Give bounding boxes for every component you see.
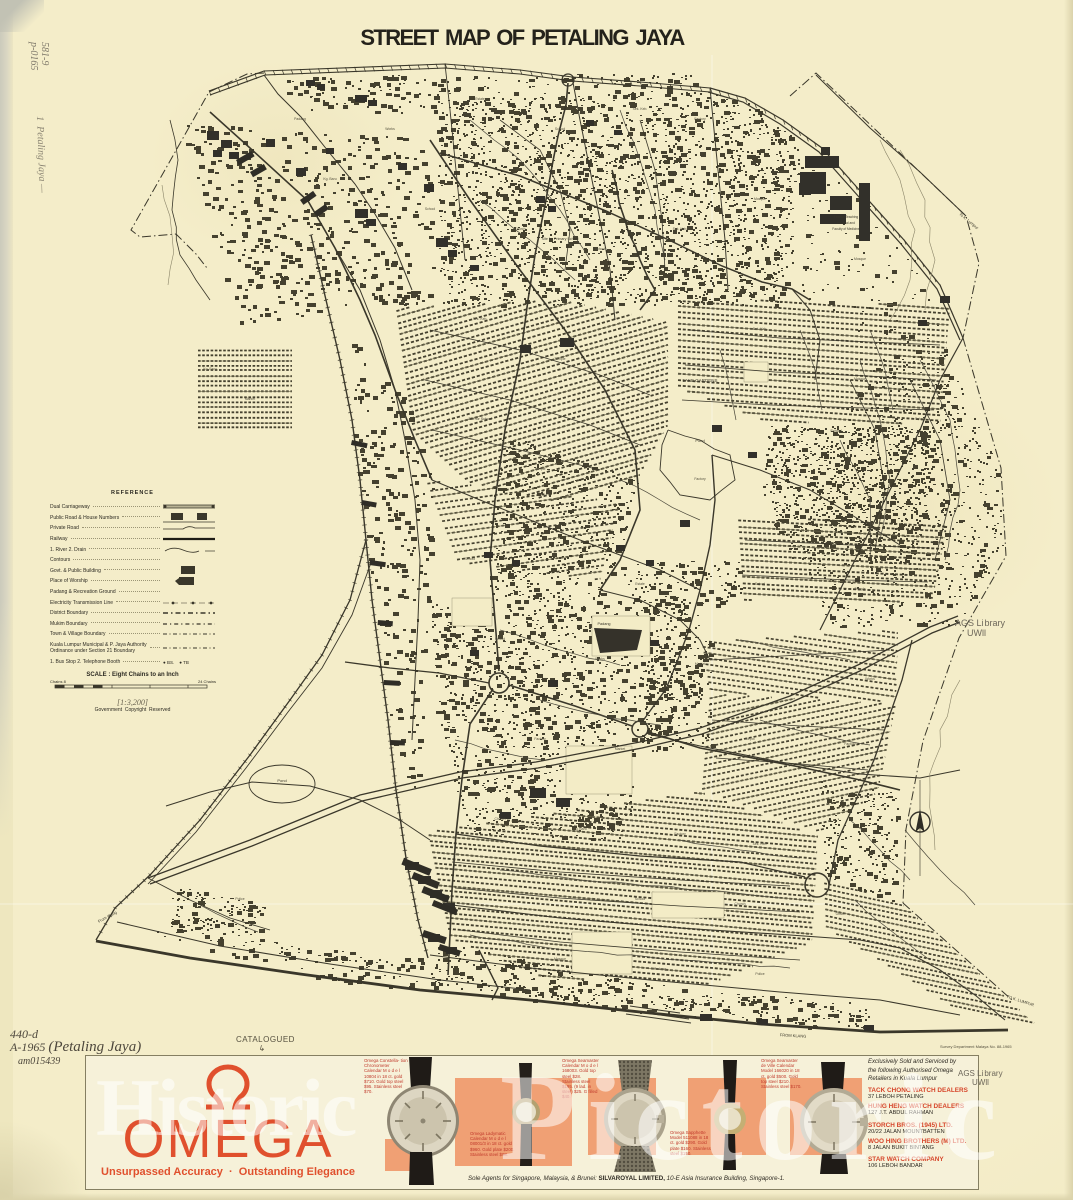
svg-text:Padang: Padang xyxy=(294,117,306,121)
svg-text:School: School xyxy=(595,247,606,251)
svg-text:Factory: Factory xyxy=(674,832,686,836)
svg-text:School: School xyxy=(465,557,476,561)
svg-text:FROM KLANG: FROM KLANG xyxy=(780,1032,807,1038)
svg-text:Sek. Keb.: Sek. Keb. xyxy=(633,107,648,111)
svg-text:Police: Police xyxy=(235,897,244,901)
svg-text:School: School xyxy=(555,127,566,131)
svg-text:Hospital and: Hospital and xyxy=(837,221,855,225)
svg-text:TO K. LUMPUR: TO K. LUMPUR xyxy=(1006,994,1035,1008)
svg-text:Church: Church xyxy=(495,817,506,821)
svg-text:Site for School: Site for School xyxy=(468,417,492,421)
svg-text:Mosque: Mosque xyxy=(794,647,806,651)
svg-text:Mosque: Mosque xyxy=(854,377,866,381)
svg-text:Sek. Keb.: Sek. Keb. xyxy=(673,227,688,231)
svg-text:Temple: Temple xyxy=(555,357,566,361)
svg-text:Office: Office xyxy=(836,912,845,916)
svg-text:Mosque: Mosque xyxy=(854,257,866,261)
svg-text:Works: Works xyxy=(595,657,605,661)
svg-text:School: School xyxy=(635,897,646,901)
svg-text:School: School xyxy=(830,429,842,433)
svg-text:Works: Works xyxy=(865,677,875,681)
svg-text:Depot: Depot xyxy=(745,737,754,741)
svg-text:Factory: Factory xyxy=(844,742,856,746)
svg-text:Factory: Factory xyxy=(694,477,706,481)
svg-text:School: School xyxy=(755,582,766,586)
svg-text:Padang: Padang xyxy=(654,967,666,971)
svg-text:Padang: Padang xyxy=(597,622,610,626)
svg-text:Market: Market xyxy=(615,747,625,751)
svg-text:Mosque: Mosque xyxy=(554,957,566,961)
svg-text:Mosque: Mosque xyxy=(754,197,766,201)
svg-text:Market: Market xyxy=(695,662,705,666)
svg-text:Temple: Temple xyxy=(535,467,546,471)
svg-text:Police: Police xyxy=(755,972,764,976)
svg-text:School: School xyxy=(495,637,506,641)
svg-text:Sek. Keb.: Sek. Keb. xyxy=(473,317,488,321)
svg-text:Sek. Keb.: Sek. Keb. xyxy=(753,842,768,846)
svg-text:Pond: Pond xyxy=(695,438,704,443)
svg-text:Kg. Baru: Kg. Baru xyxy=(573,827,586,831)
svg-text:Factory: Factory xyxy=(694,117,706,121)
svg-text:Church: Church xyxy=(515,227,526,231)
svg-text:Federal Teaching: Federal Teaching xyxy=(834,215,859,219)
svg-text:Works: Works xyxy=(385,127,395,131)
svg-text:Factory: Factory xyxy=(534,737,546,741)
svg-text:Chains 8: Chains 8 xyxy=(50,679,67,684)
svg-text:Market: Market xyxy=(245,397,255,401)
svg-text:Site for Primary School: Site for Primary School xyxy=(542,237,579,241)
svg-text:Kg. Baru: Kg. Baru xyxy=(203,367,216,371)
svg-text:Estate: Estate xyxy=(635,582,645,586)
svg-text:School: School xyxy=(425,207,436,211)
svg-text:Temple: Temple xyxy=(855,587,866,591)
svg-text:Faculty of Medicine: Faculty of Medicine xyxy=(832,227,860,231)
svg-text:Pond: Pond xyxy=(277,778,286,783)
svg-text:Sek. Keb.: Sek. Keb. xyxy=(753,327,768,331)
svg-text:LAKE GARDENS: LAKE GARDENS xyxy=(682,378,717,383)
svg-text:School: School xyxy=(915,417,926,421)
svg-text:Church: Church xyxy=(735,902,746,906)
svg-text:Kg. Baru: Kg. Baru xyxy=(323,177,336,181)
svg-text:24 Chains: 24 Chains xyxy=(198,679,216,684)
svg-text:Estate: Estate xyxy=(475,97,485,101)
